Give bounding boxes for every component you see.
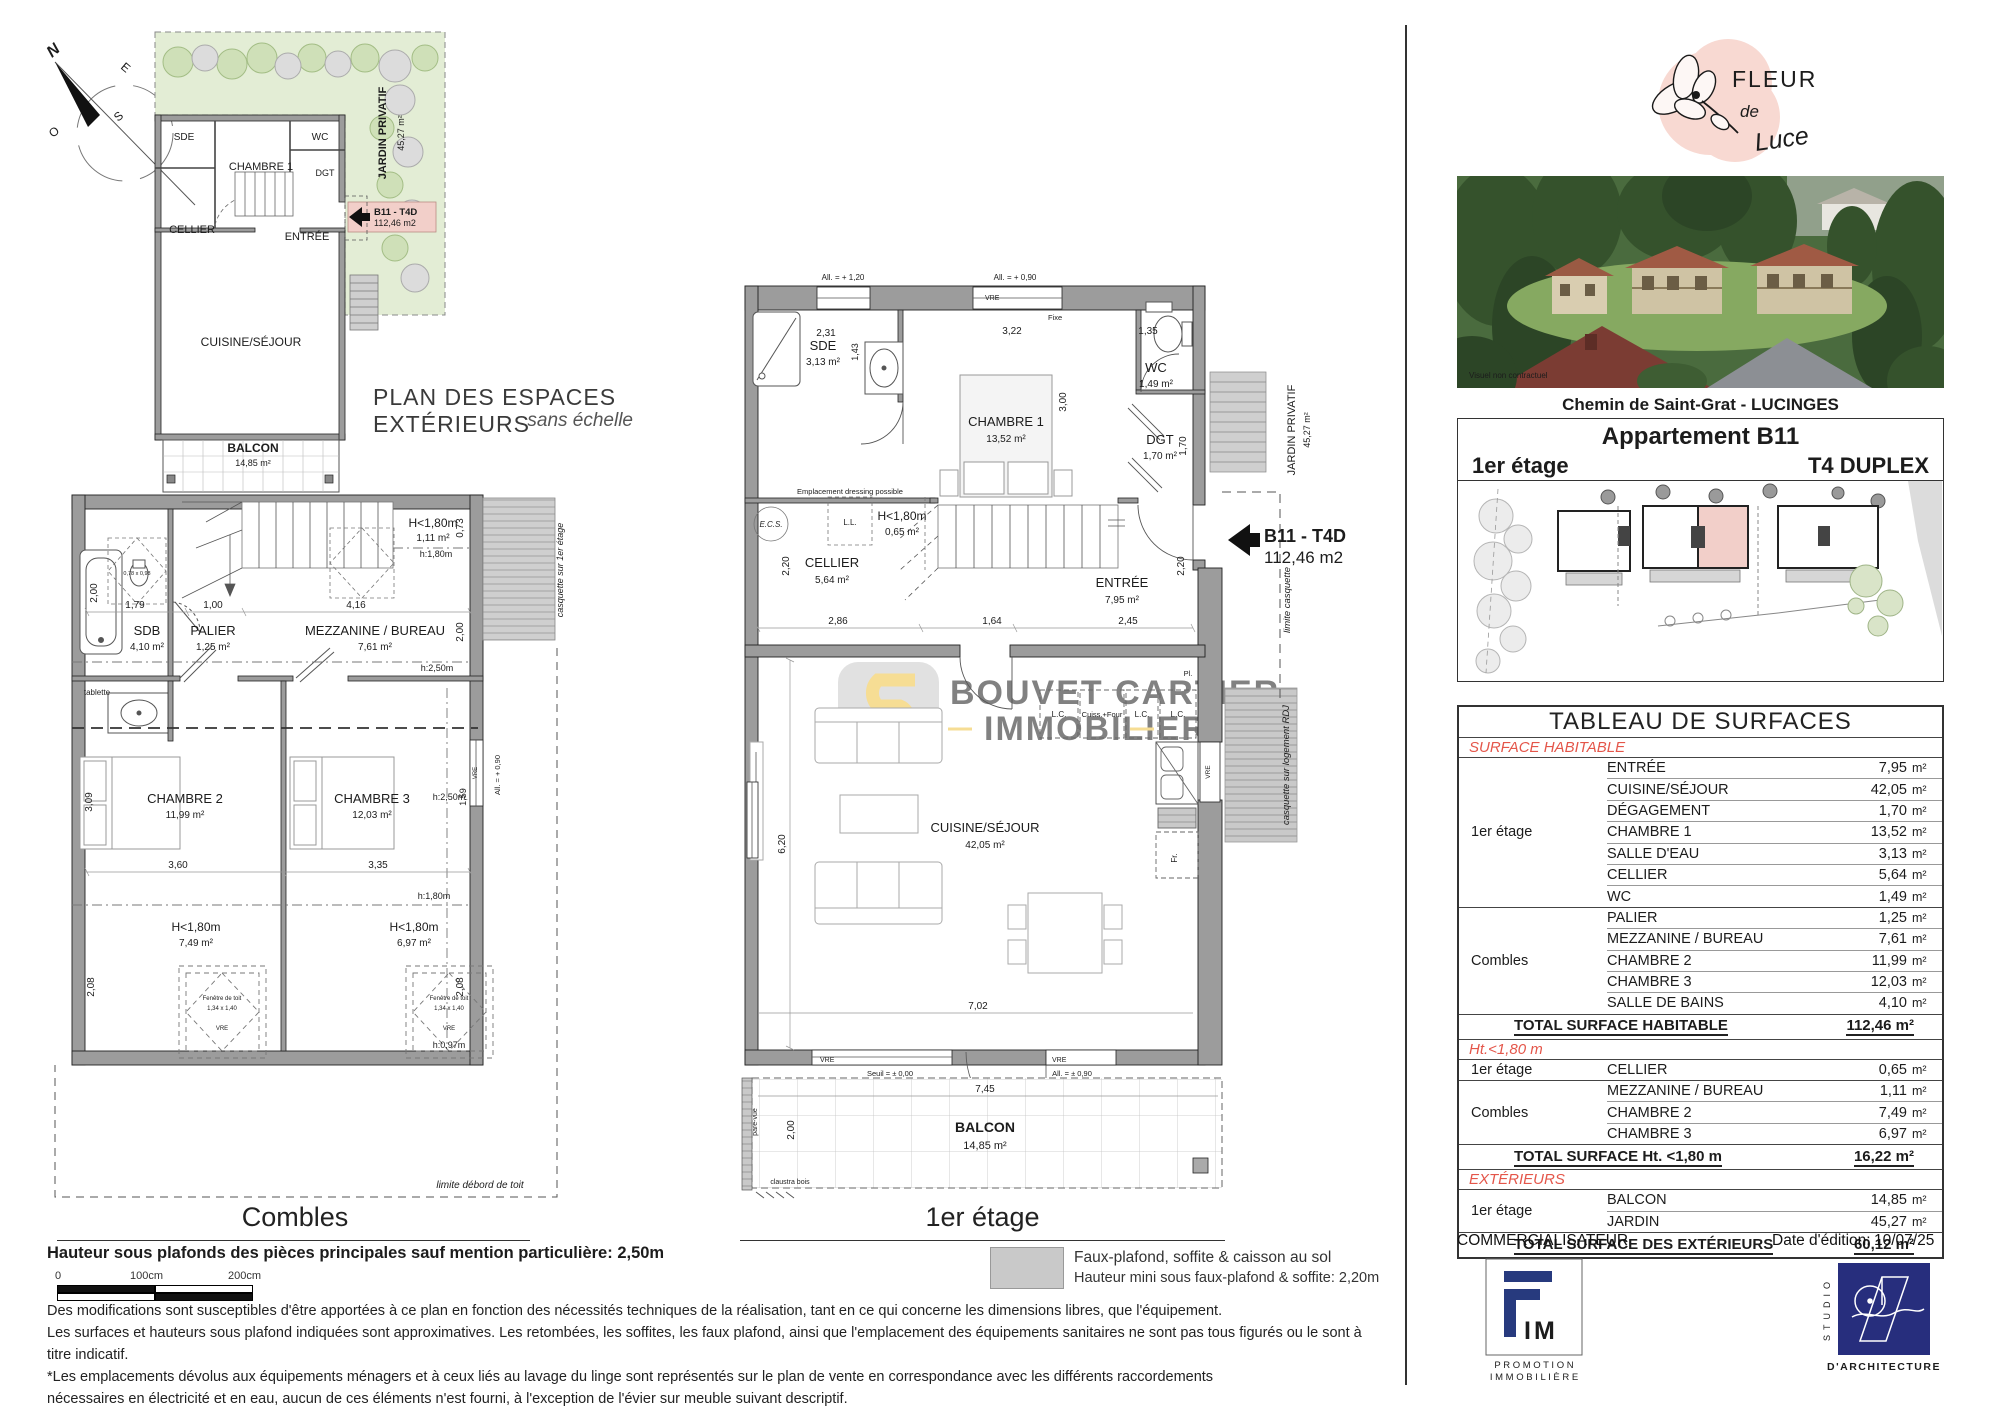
svg-text:4,16: 4,16 (346, 600, 366, 611)
svg-text:Fr.: Fr. (1170, 853, 1179, 862)
scale-zero: 0 (55, 1270, 61, 1282)
table-row: MEZZANINE / BUREAU1,11m² (1607, 1081, 1942, 1102)
mini-stairs (215, 172, 293, 225)
svg-text:CHAMBRE 1: CHAMBRE 1 (229, 161, 293, 173)
table-row: BALCON14,85m² (1607, 1190, 1942, 1211)
apartment-floor: 1er étage (1472, 453, 1569, 479)
sdb-sink (108, 693, 170, 733)
dressing-note: Emplacement dressing possible (797, 487, 903, 496)
logo-fleur-text: FLEUR (1732, 66, 1817, 92)
svg-text:3,00: 3,00 (1058, 392, 1069, 412)
table-row: CHAMBRE 211,99m² (1607, 951, 1942, 972)
total-ht180: TOTAL SURFACE Ht. <1,80 m16,22 m² (1459, 1144, 1942, 1170)
svg-text:h:0,97m: h:0,97m (433, 1040, 466, 1050)
column-divider (1405, 25, 1407, 1385)
casquette-hatch (483, 498, 555, 640)
scale-bar (57, 1285, 155, 1293)
scale-bar (155, 1285, 253, 1293)
first-floor-plan: BOUVET CARTIER IMMOBILIER All. = + 1,20 … (720, 260, 1360, 1205)
svg-text:7,49 m²: 7,49 m² (179, 938, 214, 949)
svg-text:SDE: SDE (810, 338, 837, 353)
mini-plan-subtitle: sans échelle (373, 410, 633, 432)
site-plan (1458, 481, 1942, 680)
table-row: MEZZANINE / BUREAU7,61m² (1607, 929, 1942, 950)
svg-text:CELLIER: CELLIER (805, 555, 859, 570)
mini-balcony-area: 14,85 m² (235, 458, 271, 468)
svg-text:7,95 m²: 7,95 m² (1105, 595, 1140, 606)
svg-text:3,09: 3,09 (84, 792, 95, 812)
svg-text:14,85 m²: 14,85 m² (963, 1140, 1007, 1152)
svg-text:6,97 m²: 6,97 m² (397, 938, 432, 949)
svg-text:VRE: VRE (473, 767, 479, 779)
svg-text:112,46 m2: 112,46 m2 (1264, 548, 1343, 567)
svg-text:PALIER: PALIER (190, 623, 235, 638)
svg-text:B11 - T4D: B11 - T4D (1264, 526, 1346, 546)
total-habitable: TOTAL SURFACE HABITABLE112,46 m² (1459, 1014, 1942, 1040)
etage-stairs (898, 505, 1125, 600)
svg-text:2,00: 2,00 (455, 622, 466, 642)
svg-text:1,35: 1,35 (1138, 326, 1158, 337)
mini-unit-area: 112,46 m2 (374, 218, 416, 228)
svg-text:L.C.: L.C. (1171, 710, 1186, 719)
roof-window-texts: Fenêtre de toit 1,34 x 1,40 VRE Fenêtre … (203, 996, 469, 1032)
fim-promotion-text: P R O M O T I O N (1494, 1360, 1573, 1371)
etage-caption-rule (740, 1240, 1225, 1241)
garden-area: 45,27 m² (396, 115, 406, 151)
svg-text:1,34 x 1,40: 1,34 x 1,40 (207, 1006, 237, 1012)
svg-text:All. = + 0,90: All. = + 0,90 (994, 273, 1037, 282)
svg-text:2,00: 2,00 (89, 583, 100, 603)
fim-im-text: IM (1524, 1317, 1558, 1345)
svg-text:MEZZANINE / BUREAU: MEZZANINE / BUREAU (305, 623, 445, 638)
sdb-window-size: 0,78 x 0,98 (123, 571, 150, 577)
etage-sde-sink (865, 342, 903, 394)
svg-text:2,86: 2,86 (828, 616, 848, 627)
project-address: Chemin de Saint-Grat - LUCINGES (1457, 395, 1944, 415)
svg-text:SDB: SDB (134, 623, 161, 638)
svg-text:1,49 m²: 1,49 m² (1139, 379, 1174, 390)
svg-text:1,70 m²: 1,70 m² (1143, 451, 1178, 462)
casquette-label: casquette sur 1er étage (555, 523, 565, 618)
svg-text:Cuiss.+Four: Cuiss.+Four (1082, 710, 1123, 719)
svg-text:L.C.: L.C. (1135, 710, 1150, 719)
svg-text:H<1,80m: H<1,80m (171, 920, 220, 934)
studio-vertical-text: STUDIO (1822, 1277, 1832, 1341)
svg-text:3,60: 3,60 (168, 860, 188, 871)
table-row: CHAMBRE 113,52m² (1607, 822, 1942, 843)
disclaimer-line4: nécessaires en électricité et en eau, au… (47, 1388, 1377, 1410)
plan-sheet: N E S O JARDIN PRIVATIF 45,27 m² (0, 0, 2000, 1413)
svg-text:2,08: 2,08 (455, 977, 466, 997)
fleur-de-luce-logo: FLEUR de Luce (1620, 25, 1820, 175)
etage-shower (753, 312, 800, 386)
svg-text:6,20: 6,20 (777, 834, 788, 854)
project-photo: Visuel non contractuel (1457, 176, 1944, 388)
group-etage-exterieurs: 1er étage BALCON14,85m² JARDIN45,27m² (1459, 1190, 1942, 1232)
edition-date-value: 10/07/25 (1874, 1232, 1934, 1250)
etage-room-labels: SDE 3,13 m² CHAMBRE 1 13,52 m² WC 1,49 m… (805, 338, 1178, 851)
svg-text:CHAMBRE 1: CHAMBRE 1 (968, 414, 1044, 429)
svg-text:h:2,50m: h:2,50m (421, 663, 454, 673)
svg-text:7,61 m²: 7,61 m² (358, 642, 393, 653)
apartment-header-box: Appartement B11 1er étage T4 DUPLEX (1457, 418, 1944, 682)
svg-text:CHAMBRE 3: CHAMBRE 3 (334, 791, 410, 806)
combles-stairs (182, 502, 393, 598)
scale-200: 200cm (228, 1270, 261, 1282)
overhang-label: limite débord de toit (436, 1180, 524, 1191)
svg-text:42,05 m²: 42,05 m² (965, 840, 1005, 851)
svg-text:VRE: VRE (216, 1026, 228, 1032)
table-row: SALLE D'EAU3,13m² (1607, 844, 1942, 865)
ll-label: L.L. (843, 518, 856, 527)
svg-text:VRE: VRE (1205, 765, 1212, 779)
combles-caption-rule (57, 1240, 530, 1241)
svg-text:Fixe: Fixe (1048, 313, 1062, 322)
table-row: DÉGAGEMENT1,70m² (1607, 801, 1942, 822)
private-garden: JARDIN PRIVATIF 45,27 m² (155, 32, 445, 315)
svg-text:h:1,80m: h:1,80m (418, 891, 451, 901)
svg-text:VRE: VRE (985, 295, 1000, 302)
svg-text:pare-vue: pare-vue (752, 1108, 759, 1136)
table-row: CELLIER5,64m² (1607, 865, 1942, 886)
group-etage-ht180: 1er étage CELLIER0,65m² (1459, 1060, 1942, 1080)
limite-casquette (1222, 492, 1280, 700)
svg-text:SDE: SDE (174, 132, 195, 143)
svg-text:2,45: 2,45 (1118, 616, 1138, 627)
combles-right-window: VRE All. = + 0,90 (470, 740, 502, 806)
fim-immobiliere-text: I M M O B I L I È R E (1490, 1372, 1578, 1383)
etage-sofas (750, 708, 942, 924)
studio-sub-text: D'ARCHITECTURE (1827, 1361, 1941, 1373)
svg-text:1,11 m²: 1,11 m² (416, 533, 450, 544)
exterior-stairs (1210, 372, 1266, 472)
svg-text:O: O (46, 124, 62, 141)
unit-tag: B11 - T4D 112,46 m2 (1228, 524, 1346, 567)
svg-text:Seuil = ± 0,00: Seuil = ± 0,00 (867, 1069, 913, 1078)
commercialisateur-label: COMMERCIALISATEUR (1457, 1232, 1628, 1250)
casquette-rdj-label: casquette sur logement RDJ (1281, 705, 1292, 825)
svg-text:ENTRÉE: ENTRÉE (285, 230, 330, 243)
limite-casquette-label: limite casquette (1282, 567, 1293, 633)
svg-text:1,34 x 1,40: 1,34 x 1,40 (434, 1006, 464, 1012)
section-exterieurs: EXTÉRIEURS (1459, 1170, 1942, 1190)
table-row: JARDIN45,27m² (1607, 1212, 1942, 1232)
svg-text:1,79: 1,79 (125, 600, 145, 611)
svg-text:3,35: 3,35 (368, 860, 388, 871)
apartment-title: Appartement B11 (1458, 419, 1943, 451)
svg-text:VRE: VRE (443, 1026, 455, 1032)
svg-text:All. = ± 0,90: All. = ± 0,90 (1052, 1069, 1092, 1078)
svg-text:H<1,80m: H<1,80m (389, 920, 438, 934)
svg-text:0,73: 0,73 (455, 518, 466, 538)
table-row: CHAMBRE 27,49m² (1607, 1102, 1942, 1123)
combles-caption: Combles (60, 1202, 530, 1233)
svg-text:4,10 m²: 4,10 m² (130, 642, 165, 653)
group-etage-habitable: 1er étage ENTRÉE7,95m² CUISINE/SÉJOUR42,… (1459, 758, 1942, 907)
svg-text:WC: WC (1145, 360, 1167, 375)
svg-text:N: N (44, 40, 64, 61)
svg-text:CUISINE/SÉJOUR: CUISINE/SÉJOUR (930, 820, 1039, 835)
mini-exterior-steps (350, 275, 378, 330)
etage-caption: 1er étage (740, 1202, 1225, 1233)
svg-text:2,00: 2,00 (786, 1120, 797, 1140)
table-row: ENTRÉE7,95m² (1607, 758, 1942, 779)
svg-text:2,31: 2,31 (816, 328, 836, 339)
svg-text:H<1,80m: H<1,80m (408, 516, 457, 530)
svg-text:3,13 m²: 3,13 m² (806, 357, 841, 368)
architecture-studio-logo: STUDIO D'ARCHITECTURE (1820, 1255, 1944, 1383)
svg-text:All. = + 1,20: All. = + 1,20 (822, 273, 865, 282)
apartment-header: Appartement B11 1er étage T4 DUPLEX (1458, 419, 1943, 481)
garden-label: JARDIN PRIVATIF (377, 86, 389, 179)
mini-balcony-label: BALCON (227, 441, 278, 455)
disclaimer-line2: Les surfaces et hauteurs sous plafond in… (47, 1322, 1377, 1366)
ecs-label: E.C.S. (759, 520, 782, 529)
svg-text:E: E (118, 60, 133, 76)
svg-text:1,43: 1,43 (850, 343, 860, 361)
svg-text:1,59: 1,59 (458, 788, 468, 806)
svg-text:13,52 m²: 13,52 m² (986, 434, 1026, 445)
svg-text:CHAMBRE 2: CHAMBRE 2 (147, 791, 223, 806)
svg-text:0,65 m²: 0,65 m² (885, 527, 920, 538)
table-row: WC1,49m² (1607, 886, 1942, 906)
svg-text:12,03 m²: 12,03 m² (352, 810, 392, 821)
svg-text:1,70: 1,70 (1178, 436, 1189, 456)
svg-text:DGT: DGT (316, 168, 336, 178)
group-combles-habitable: Combles PALIER1,25m² MEZZANINE / BUREAU7… (1459, 907, 1942, 1014)
svg-text:2,20: 2,20 (781, 556, 792, 576)
svg-text:11,99 m²: 11,99 m² (166, 810, 205, 821)
svg-text:3,22: 3,22 (1002, 326, 1022, 337)
svg-text:1,25 m²: 1,25 m² (196, 642, 231, 653)
svg-text:H<1,80m: H<1,80m (877, 509, 926, 523)
svg-text:7,02: 7,02 (968, 1001, 988, 1012)
surface-table: TABLEAU DE SURFACES SURFACE HABITABLE 1e… (1457, 705, 1944, 1259)
apartment-type: T4 DUPLEX (1808, 453, 1929, 479)
table-row: CHAMBRE 312,03m² (1607, 972, 1942, 993)
fim-logo: IM P R O M O T I O N I M M O B I L I È R… (1478, 1255, 1588, 1383)
scale-100: 100cm (130, 1270, 163, 1282)
disclaimer-line3: *Les emplacements dévolus aux équipement… (47, 1366, 1377, 1388)
group-combles-ht180: Combles MEZZANINE / BUREAU1,11m² CHAMBRE… (1459, 1080, 1942, 1144)
section-ht180: Ht.<1,80 m (1459, 1040, 1942, 1060)
combles-room-labels: H<1,80m 1,11 m² SDB 4,10 m² PALIER 1,25 … (130, 516, 457, 949)
table-row: CUISINE/SÉJOUR42,05m² (1607, 779, 1942, 800)
section-habitable: SURFACE HABITABLE (1459, 738, 1942, 758)
jardin-label: JARDIN PRIVATIF (1286, 384, 1298, 475)
svg-text:Pl.: Pl. (1184, 669, 1193, 678)
svg-text:CELLIER: CELLIER (169, 224, 215, 236)
svg-text:Fenêtre de toit: Fenêtre de toit (203, 996, 242, 1002)
combles-plan: casquette sur 1er étage limite débord de… (40, 470, 660, 1210)
table-row: PALIER1,25m² (1607, 908, 1942, 929)
mini-unit-tag: B11 - T4D (374, 207, 417, 218)
ceiling-height-note: Hauteur sous plafonds des pièces princip… (47, 1244, 664, 1263)
edition-date-label: Date d'édition: (1772, 1232, 1871, 1250)
svg-text:1,00: 1,00 (203, 600, 223, 611)
svg-text:tablette: tablette (84, 688, 111, 697)
roof-window-ch2 (179, 966, 266, 1058)
legend-line1: Faux-plafond, soffite & caisson au sol (1074, 1249, 1331, 1267)
svg-text:VRE: VRE (820, 1057, 835, 1064)
svg-text:DGT: DGT (1146, 432, 1174, 447)
mini-room-labels: SDE CHAMBRE 1 WC DGT CELLIER ENTRÉE CUIS… (169, 132, 335, 349)
svg-text:h:1,80m: h:1,80m (420, 549, 453, 559)
svg-text:7,45: 7,45 (975, 1084, 995, 1095)
disclaimer-line1: Des modifications sont susceptibles d'êt… (47, 1300, 1377, 1322)
table-row: CELLIER0,65m² (1607, 1060, 1942, 1080)
svg-text:CUISINE/SÉJOUR: CUISINE/SÉJOUR (201, 334, 302, 349)
svg-text:5,64 m²: 5,64 m² (815, 575, 850, 586)
legend-line2: Hauteur mini sous faux-plafond & soffite… (1074, 1270, 1379, 1286)
svg-text:All. = + 0,90: All. = + 0,90 (493, 755, 502, 795)
svg-text:WC: WC (312, 132, 329, 143)
etage-dining (1008, 893, 1122, 973)
svg-text:2,20: 2,20 (1176, 556, 1187, 576)
svg-text:2,08: 2,08 (86, 977, 97, 997)
table-row: SALLE DE BAINS4,10m² (1607, 993, 1942, 1013)
etage-left-window (747, 782, 758, 858)
svg-text:L.C.: L.C. (1052, 710, 1067, 719)
svg-text:1,64: 1,64 (982, 616, 1002, 627)
logo-de-text: de (1740, 102, 1759, 121)
legend-swatch (990, 1247, 1064, 1289)
photo-disclaimer: Visuel non contractuel (1469, 371, 1548, 380)
svg-text:claustra bois: claustra bois (770, 1179, 810, 1186)
svg-text:VRE: VRE (1052, 1057, 1067, 1064)
svg-text:ENTRÉE: ENTRÉE (1096, 575, 1149, 590)
surface-table-title: TABLEAU DE SURFACES (1459, 707, 1942, 738)
svg-text:BALCON: BALCON (955, 1119, 1015, 1135)
disclaimer-paragraph: Des modifications sont susceptibles d'êt… (47, 1300, 1377, 1410)
jardin-area: 45,27 m² (1302, 412, 1312, 448)
table-row: CHAMBRE 36,97m² (1607, 1124, 1942, 1144)
